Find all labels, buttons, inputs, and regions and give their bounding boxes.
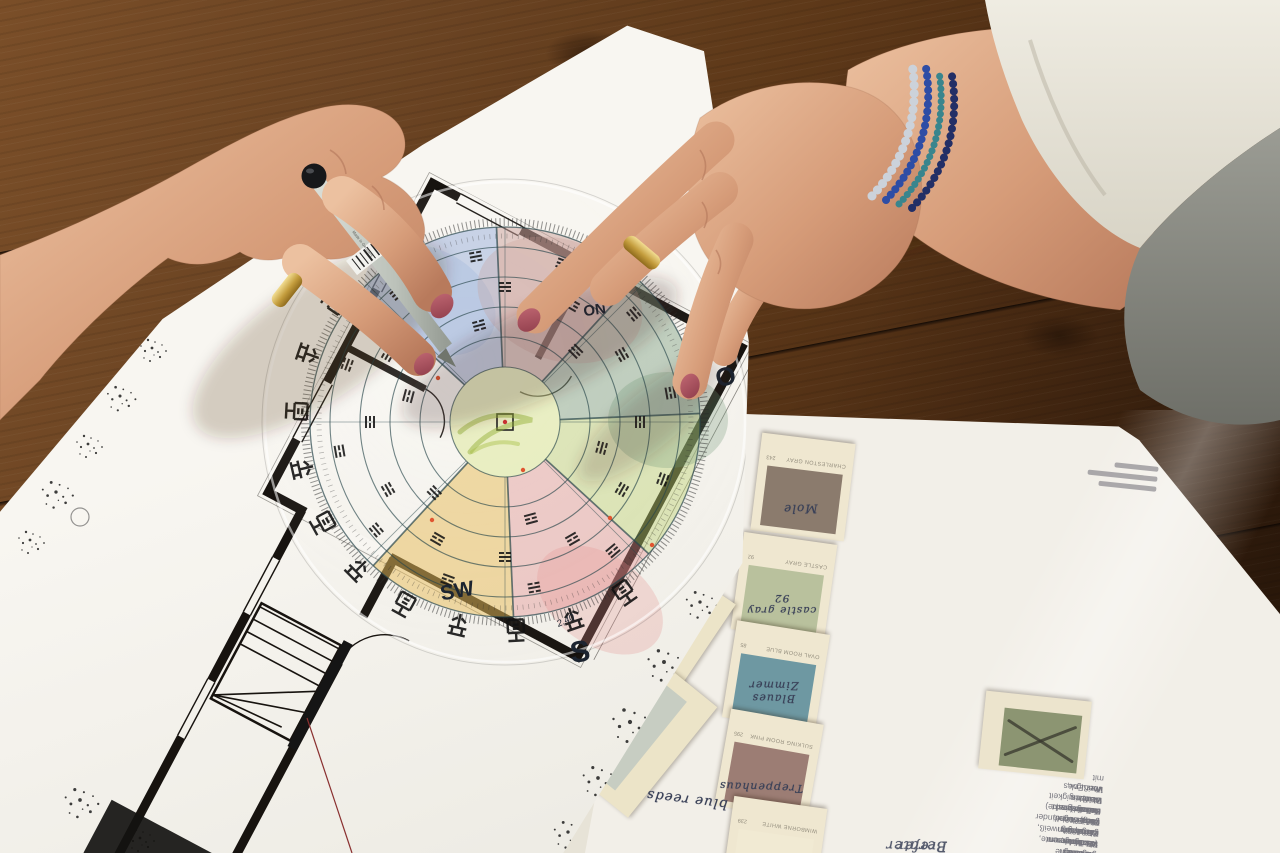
photo-scene: Eingang Farbe wimborne white 239, ein vi… xyxy=(0,0,1280,853)
hands-layer: 0.7 Made in Germany xyxy=(0,0,1280,853)
pen-cap xyxy=(302,164,327,189)
